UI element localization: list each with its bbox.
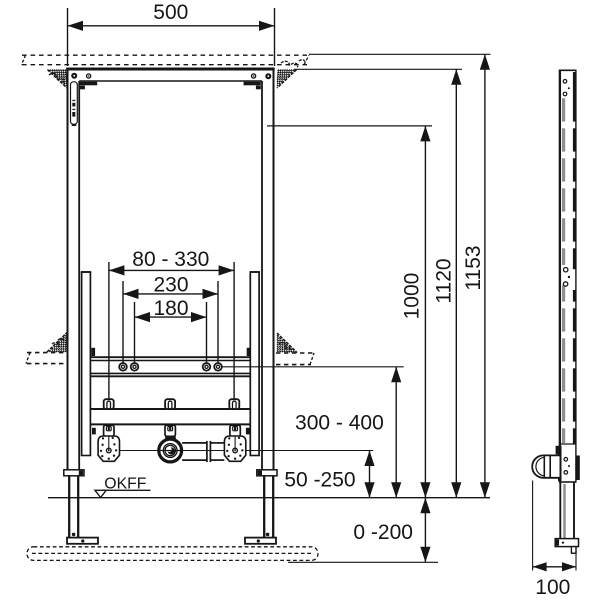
svg-text:100: 100	[535, 576, 570, 599]
svg-text:1153: 1153	[462, 245, 485, 290]
svg-text:50 -250: 50 -250	[284, 469, 355, 492]
svg-text:500: 500	[153, 1, 188, 24]
svg-text:80 - 330: 80 - 330	[132, 248, 209, 271]
svg-text:0 -200: 0 -200	[353, 521, 413, 544]
svg-text:1120: 1120	[433, 258, 456, 303]
svg-text:230: 230	[153, 273, 188, 296]
svg-text:300 - 400: 300 - 400	[295, 412, 384, 435]
svg-text:1000: 1000	[400, 273, 423, 320]
svg-text:180: 180	[153, 297, 188, 320]
